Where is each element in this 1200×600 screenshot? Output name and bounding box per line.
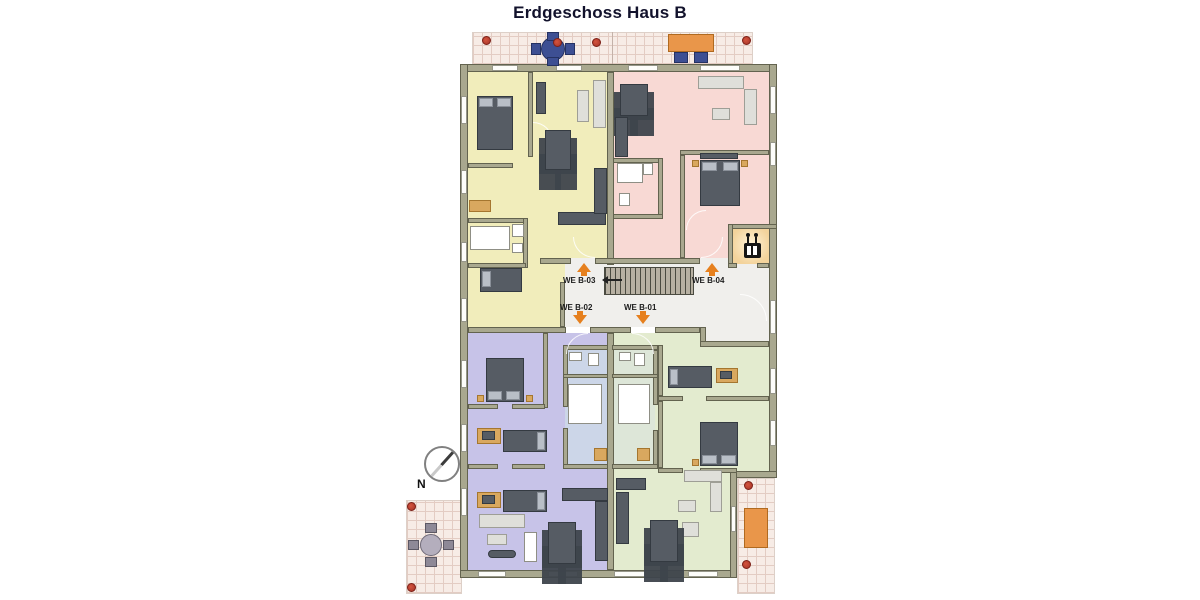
sofa (479, 514, 525, 528)
pillow (488, 391, 502, 400)
pillow (497, 98, 511, 107)
pillow (723, 162, 738, 171)
window (556, 65, 582, 71)
patio-chair (408, 540, 419, 550)
pillow (670, 369, 678, 385)
stairs-direction-arrow-icon (608, 279, 622, 281)
window (461, 298, 467, 322)
dining-table (545, 130, 571, 170)
nightstand (741, 160, 748, 167)
wall (612, 374, 658, 378)
patio-chair (694, 52, 708, 63)
wall (540, 258, 571, 264)
wall (658, 468, 683, 473)
wall (468, 464, 498, 469)
laptop (720, 371, 732, 379)
window (614, 571, 646, 577)
wall (700, 341, 769, 347)
window (461, 96, 467, 124)
plant (742, 36, 751, 45)
sink (619, 352, 631, 361)
kitchen-counter (594, 168, 607, 214)
crib (469, 200, 491, 212)
wall (655, 327, 700, 333)
pillow (537, 492, 545, 510)
toilet (634, 353, 645, 366)
toilet (588, 353, 599, 366)
wardrobe (536, 82, 546, 114)
plant (744, 481, 753, 490)
laptop (482, 431, 495, 440)
nightstand (692, 160, 699, 167)
wall (563, 428, 568, 469)
dining-table (620, 84, 648, 116)
entrance-arrow-we-b01 (636, 315, 650, 324)
entrance-arrow-we-b02 (573, 315, 587, 324)
lounger (488, 550, 516, 558)
window (461, 242, 467, 262)
wall (728, 263, 737, 268)
window (461, 360, 467, 388)
wall (769, 64, 777, 478)
corner-sofa (684, 470, 722, 482)
plant (482, 36, 491, 45)
patio-chair (425, 557, 437, 567)
unit-label-we-b03: WE B-03 (563, 276, 595, 285)
person-icon (747, 237, 749, 243)
toilet (512, 224, 524, 237)
patio-chair (443, 540, 454, 550)
nightstand (477, 395, 484, 402)
corner-sofa (744, 89, 757, 125)
wall (595, 258, 700, 264)
pillow (702, 162, 717, 171)
window (770, 86, 776, 114)
compass-needle (428, 450, 456, 480)
entrance-arrow-we-b04 (705, 263, 719, 272)
dining-table (650, 520, 678, 562)
wall (730, 471, 777, 478)
unit-label-we-b04: WE B-04 (692, 276, 724, 285)
window (461, 424, 467, 452)
entry-door (770, 300, 776, 334)
wall (563, 464, 608, 469)
sideboard (577, 90, 589, 122)
staircase (604, 267, 694, 295)
kitchen-counter (616, 478, 646, 490)
wall (468, 163, 513, 168)
entrance-arrow-we-b03 (577, 263, 591, 272)
wall (728, 224, 733, 268)
pillow (506, 391, 520, 400)
wall (590, 327, 631, 333)
wall (512, 404, 545, 409)
wall (607, 333, 614, 570)
patio-chair (547, 57, 559, 66)
toilet (619, 193, 630, 206)
compass-label: N (417, 477, 426, 491)
kitchen-counter (595, 501, 608, 561)
bathtub (618, 384, 650, 424)
window (548, 571, 578, 577)
floor-plan-page: Erdgeschoss Haus B (0, 0, 1200, 600)
pillow (721, 455, 736, 464)
coffee-table (487, 534, 507, 545)
wall (612, 464, 658, 469)
bathtub (617, 163, 643, 183)
nightstand (692, 459, 699, 466)
window (492, 65, 518, 71)
window (770, 142, 776, 166)
plant (553, 38, 562, 47)
window (478, 571, 506, 577)
window (628, 65, 658, 71)
washing-machine (637, 448, 650, 461)
bathtub (568, 384, 602, 424)
bench (700, 153, 738, 159)
corner-sofa (710, 482, 722, 512)
wall (468, 218, 528, 223)
plant (592, 38, 601, 47)
wall (528, 72, 533, 157)
laptop (482, 495, 495, 504)
kitchen-counter (615, 117, 628, 157)
window (770, 368, 776, 394)
wall (706, 396, 769, 401)
plant (742, 560, 751, 569)
pillow (479, 98, 493, 107)
patio-bench (668, 34, 714, 52)
coffee-table (712, 108, 730, 120)
window (700, 65, 740, 71)
window (461, 170, 467, 194)
sink (512, 243, 523, 253)
wall (658, 345, 663, 396)
window (688, 571, 718, 577)
wall (658, 158, 663, 219)
elevator-icon (744, 243, 761, 258)
person-icon (755, 237, 757, 243)
window (461, 488, 467, 516)
wall (613, 214, 663, 219)
dining-table (548, 522, 576, 564)
kitchen-counter (616, 492, 629, 544)
armchair (682, 522, 699, 537)
coffee-table (678, 500, 696, 512)
wall (680, 155, 685, 258)
wall (543, 333, 548, 408)
wall (658, 401, 663, 468)
wall (757, 263, 769, 268)
window (731, 506, 736, 532)
patio-chair (531, 43, 541, 55)
patio-chair (565, 43, 575, 55)
sink (643, 163, 653, 175)
wall (728, 224, 777, 229)
patio-table (420, 534, 442, 556)
washing-machine (594, 448, 607, 461)
bathtub (470, 226, 510, 250)
wall (468, 327, 566, 333)
window (770, 420, 776, 446)
page-title: Erdgeschoss Haus B (0, 3, 1200, 23)
compass-north-icon (424, 446, 460, 482)
nightstand (526, 395, 533, 402)
patio-chair (674, 52, 688, 63)
patio-chair (425, 523, 437, 533)
wall (563, 374, 608, 378)
plant (407, 502, 416, 511)
wall (607, 72, 614, 265)
pillow (537, 432, 545, 450)
sink (569, 352, 582, 361)
corner-sofa (698, 76, 744, 89)
shelf (524, 532, 537, 562)
pillow (482, 271, 491, 287)
kitchen-counter (562, 488, 608, 501)
plant (407, 583, 416, 592)
patio-bench (744, 508, 768, 548)
wall (512, 464, 545, 469)
wall (468, 404, 498, 409)
pillow (702, 455, 717, 464)
sofa (593, 80, 606, 128)
terrace-divider (612, 32, 613, 65)
